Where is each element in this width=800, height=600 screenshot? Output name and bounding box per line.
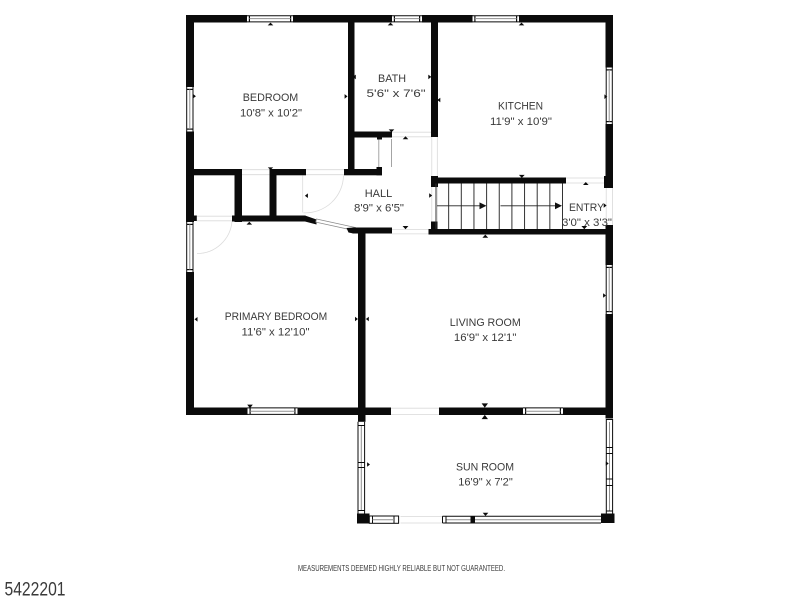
svg-text:BATH: BATH	[378, 73, 406, 85]
svg-text:16'9" x 7'2": 16'9" x 7'2"	[458, 477, 513, 489]
svg-text:10'8" x 10'2": 10'8" x 10'2"	[240, 107, 302, 119]
svg-text:SUN ROOM: SUN ROOM	[456, 462, 514, 474]
svg-text:5'6" x 7'6": 5'6" x 7'6"	[367, 88, 426, 100]
svg-text:KITCHEN: KITCHEN	[498, 100, 543, 112]
svg-text:MEASUREMENTS DEEMED HIGHLY REL: MEASUREMENTS DEEMED HIGHLY RELIABLE BUT …	[298, 564, 505, 573]
svg-text:PRIMARY BEDROOM: PRIMARY BEDROOM	[225, 311, 328, 323]
svg-text:3'0" x 3'3": 3'0" x 3'3"	[562, 217, 612, 229]
svg-text:16'9" x 12'1": 16'9" x 12'1"	[454, 332, 517, 344]
svg-text:HALL: HALL	[365, 188, 393, 200]
svg-text:8'9" x 6'5": 8'9" x 6'5"	[354, 202, 404, 214]
svg-text:5422201: 5422201	[5, 579, 66, 600]
svg-text:11'9" x 10'9": 11'9" x 10'9"	[490, 116, 552, 128]
svg-text:BEDROOM: BEDROOM	[243, 92, 299, 104]
svg-text:LIVING ROOM: LIVING ROOM	[450, 317, 521, 329]
svg-text:ENTRY: ENTRY	[569, 202, 604, 214]
svg-text:11'6" x 12'10": 11'6" x 12'10"	[242, 327, 310, 339]
